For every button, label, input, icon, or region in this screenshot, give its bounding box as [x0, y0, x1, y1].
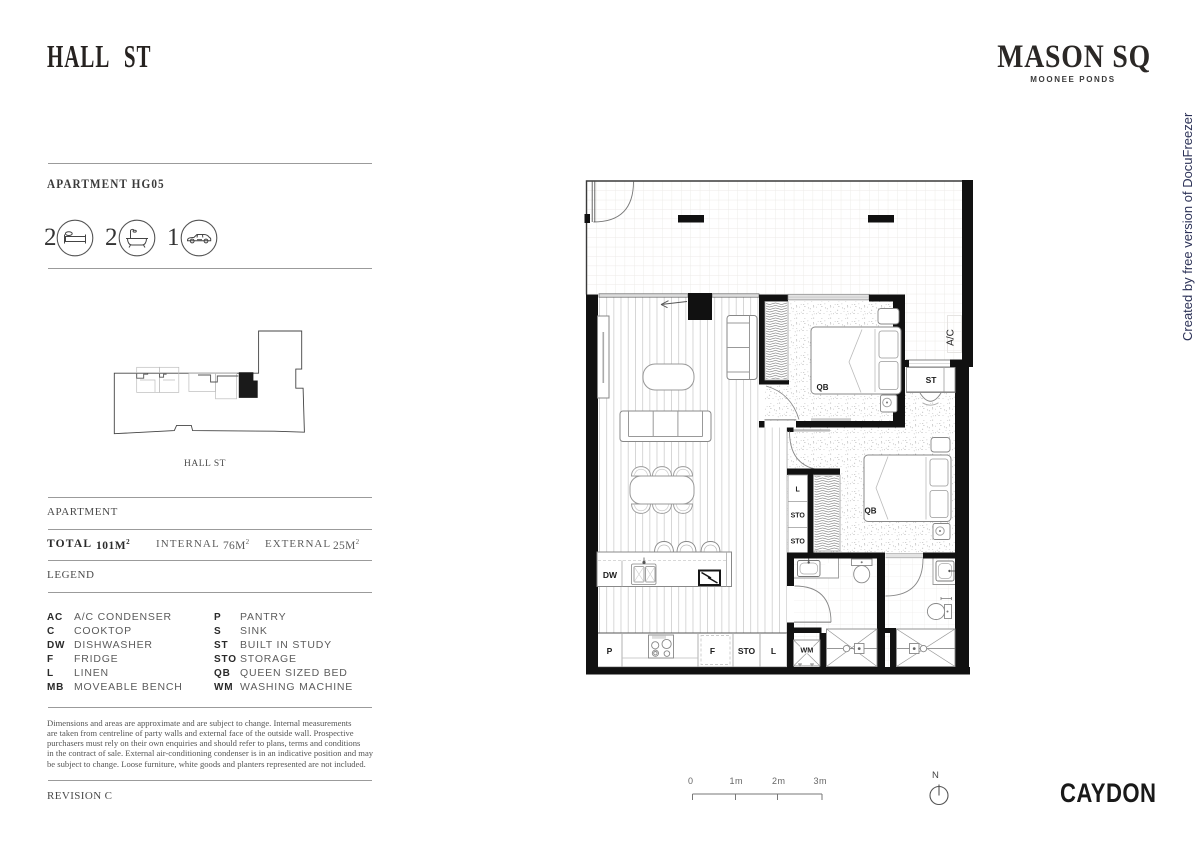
svg-text:L: L: [771, 646, 776, 656]
svg-text:STO: STO: [791, 513, 806, 520]
svg-text:L: L: [796, 487, 801, 494]
svg-text:F: F: [710, 646, 715, 656]
svg-text:P: P: [607, 646, 613, 656]
svg-text:QB: QB: [817, 383, 829, 392]
svg-text:A/C: A/C: [946, 329, 957, 346]
svg-text:DW: DW: [603, 570, 618, 580]
svg-text:STO: STO: [738, 646, 756, 656]
svg-text:STO: STO: [791, 539, 806, 546]
svg-text:ST: ST: [926, 375, 938, 385]
svg-text:WM: WM: [800, 646, 813, 655]
svg-text:QB: QB: [865, 507, 877, 516]
